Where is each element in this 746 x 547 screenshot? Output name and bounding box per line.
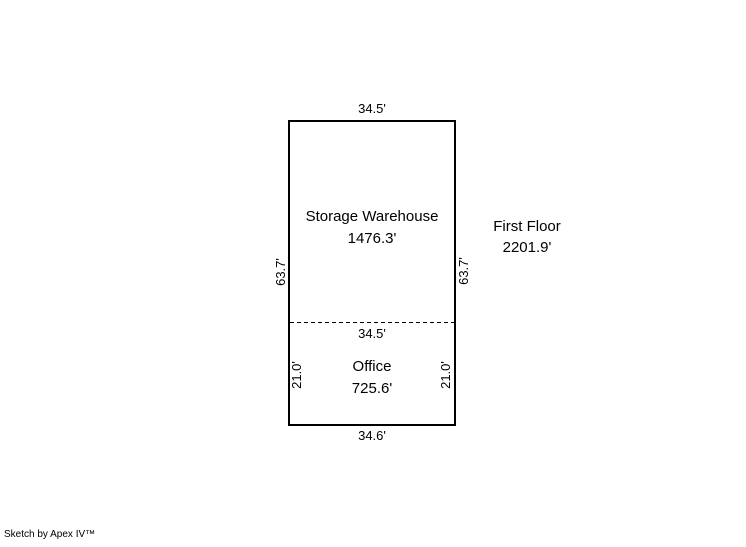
dim-right-height: 63.7' [457, 241, 471, 301]
office-area-label: 725.6' [288, 378, 456, 400]
floorplan-sketch-canvas: 34.5' 34.6' 63.7' 63.7' 34.5' 21.0' 21.0… [0, 0, 746, 547]
first-floor-area-label: 2201.9' [477, 237, 577, 258]
office-label-block: Office 725.6' [288, 356, 456, 400]
warehouse-label-block: Storage Warehouse 1476.3' [288, 206, 456, 250]
first-floor-label: First Floor [477, 216, 577, 237]
dim-left-height: 63.7' [274, 242, 288, 302]
dim-partition-width: 34.5' [288, 327, 456, 341]
sketch-attribution: Sketch by Apex IV™ [4, 529, 95, 541]
warehouse-name-label: Storage Warehouse [288, 206, 456, 228]
first-floor-summary-block: First Floor 2201.9' [477, 216, 577, 258]
warehouse-area-label: 1476.3' [288, 228, 456, 250]
dim-bottom-width: 34.6' [288, 429, 456, 443]
dim-top-width: 34.5' [288, 102, 456, 116]
office-name-label: Office [288, 356, 456, 378]
partition-dashed-line [290, 322, 454, 323]
